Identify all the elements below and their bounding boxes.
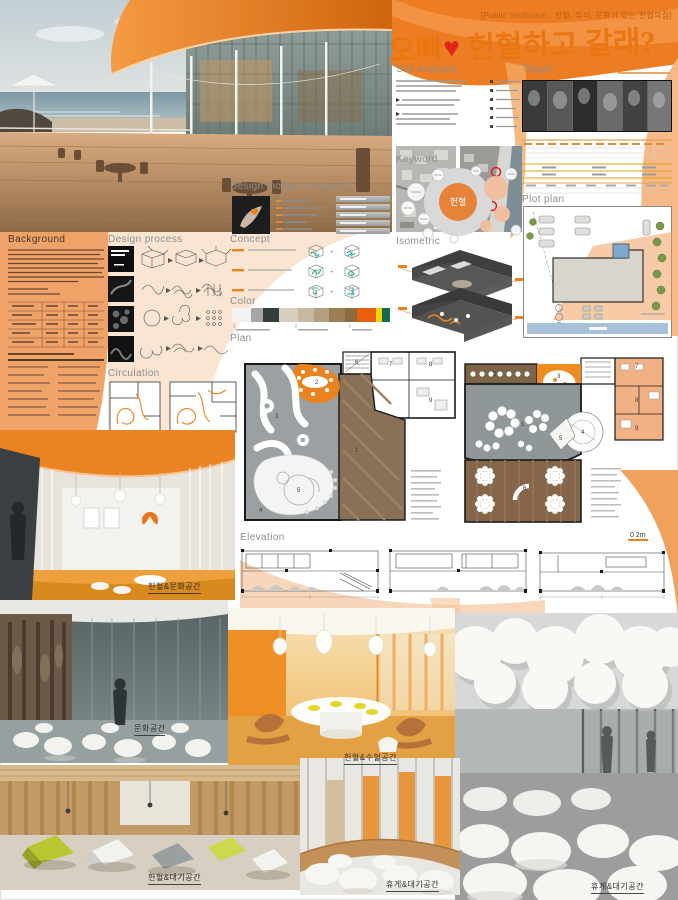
tag-bar (336, 228, 390, 234)
rendering-caption: 휴게&대기공간 (591, 881, 644, 894)
color-swatch (382, 308, 390, 322)
color-palette-ticks (232, 324, 390, 334)
heading-plot-plan: Plot plan (522, 194, 565, 205)
hero-terrace-rendering (0, 0, 392, 232)
color-swatch (298, 308, 314, 322)
color-swatch (329, 308, 345, 322)
plan-scale-label: 0 2m (628, 532, 648, 541)
rendering-rest-waiting-counter (300, 758, 460, 895)
color-swatch (232, 308, 251, 322)
svg-text:헌혈: 헌혈 (450, 196, 467, 207)
background-text-block (8, 248, 104, 426)
heading-target: Target (522, 64, 552, 75)
floor-plan-1: 1 2 3 4 5 6 7 8 9 (243, 350, 459, 532)
design-motive-tag-bars (336, 196, 390, 236)
rendering-culture-space (0, 600, 228, 763)
heading-plan: Plan (230, 333, 252, 344)
heading-concept: Concept (230, 234, 270, 245)
color-palette (232, 308, 390, 322)
floor-plan-2: 1 2 3 4 5 6 7 8 9 (463, 356, 665, 526)
rendering-caption: 헌혈&문화공간 (148, 581, 201, 594)
color-swatch (314, 308, 330, 322)
tag-bar (336, 204, 390, 210)
svg-text:+: + (330, 250, 334, 256)
isometric-floors-rendering (398, 246, 524, 346)
color-swatch (251, 308, 263, 322)
svg-text:+: + (330, 270, 334, 276)
plot-plan-drawing (523, 206, 672, 338)
heading-circulation: Circulation (108, 368, 160, 379)
rendering-donation-culture-space (0, 430, 235, 600)
tag-bar (336, 212, 390, 218)
heading-design-motive: Design motive & keyword (230, 181, 352, 192)
site-analysis-text (396, 78, 522, 140)
rendering-donation-lounge (228, 608, 455, 765)
target-data-tables (522, 138, 672, 196)
rendering-caption: 헌혈&대기공간 (148, 872, 201, 885)
design-process-diagram (108, 246, 240, 364)
rendering-caption: 휴게&대기공간 (386, 879, 439, 892)
heading-site-analysis: Site analysis (396, 64, 457, 75)
svg-text:+: + (330, 290, 334, 296)
heading-background: Background (8, 234, 65, 245)
heading-isometric: Isometric (396, 236, 440, 247)
heading-design-process: Design process (108, 234, 183, 245)
elevation-sections (240, 545, 668, 603)
rendering-caption: 문화공간 (134, 723, 165, 736)
design-motive-photo (232, 196, 270, 234)
circulation-plans (108, 380, 240, 436)
heart-icon: ♥ (443, 33, 461, 65)
title-part2: 헌혈하고 갈래? (467, 26, 656, 66)
color-swatch (345, 308, 357, 322)
color-swatch (263, 308, 279, 322)
heading-keyword: Keyword (396, 154, 438, 165)
heading-color: Color (230, 296, 256, 307)
tag-bar (336, 196, 390, 202)
title-part1: 오빠 (388, 33, 444, 68)
design-motive-keyword-list (276, 198, 332, 234)
tag-bar (336, 220, 390, 226)
rendering-caption: 헌혈&수혈공간 (344, 752, 397, 765)
target-photo-strip (522, 70, 672, 132)
color-swatch (357, 308, 376, 322)
keyword-bubble-diagram: 헌혈 (398, 162, 522, 244)
rendering-rest-waiting-clouds (455, 613, 678, 900)
design-poster: [Public Institution : 헌혈, 휴식, 문화가 있는 헌혈의… (0, 0, 678, 900)
color-swatch (279, 308, 298, 322)
heading-elevation: Elevation (240, 532, 285, 543)
concept-sketches: +++ (232, 244, 390, 304)
